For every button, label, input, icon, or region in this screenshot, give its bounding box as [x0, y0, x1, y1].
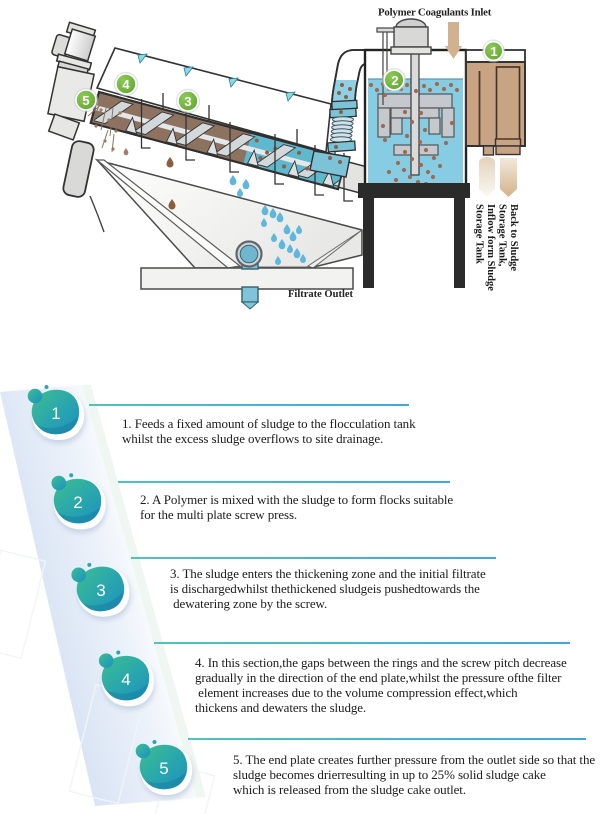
- svg-text:Storage Tank,: Storage Tank,: [497, 204, 508, 267]
- svg-text:4: 4: [121, 670, 130, 689]
- svg-text:Inflow form Sludge: Inflow form Sludge: [485, 204, 496, 291]
- svg-text:Storage Tank: Storage Tank: [474, 204, 485, 264]
- svg-text:4: 4: [122, 77, 130, 92]
- svg-text:1: 1: [490, 44, 497, 59]
- svg-text:3: 3: [184, 94, 191, 109]
- svg-text:2: 2: [391, 73, 398, 88]
- svg-text:3: 3: [96, 581, 105, 600]
- svg-text:Back to Sludge: Back to Sludge: [508, 204, 519, 271]
- svg-text:5: 5: [82, 93, 89, 108]
- svg-text:2: 2: [73, 493, 82, 512]
- svg-text:Filtrate Outlet: Filtrate Outlet: [288, 289, 354, 300]
- svg-text:Polymer Coagulants Inlet: Polymer Coagulants Inlet: [378, 7, 492, 19]
- svg-text:5: 5: [159, 759, 168, 778]
- svg-text:1: 1: [51, 404, 60, 423]
